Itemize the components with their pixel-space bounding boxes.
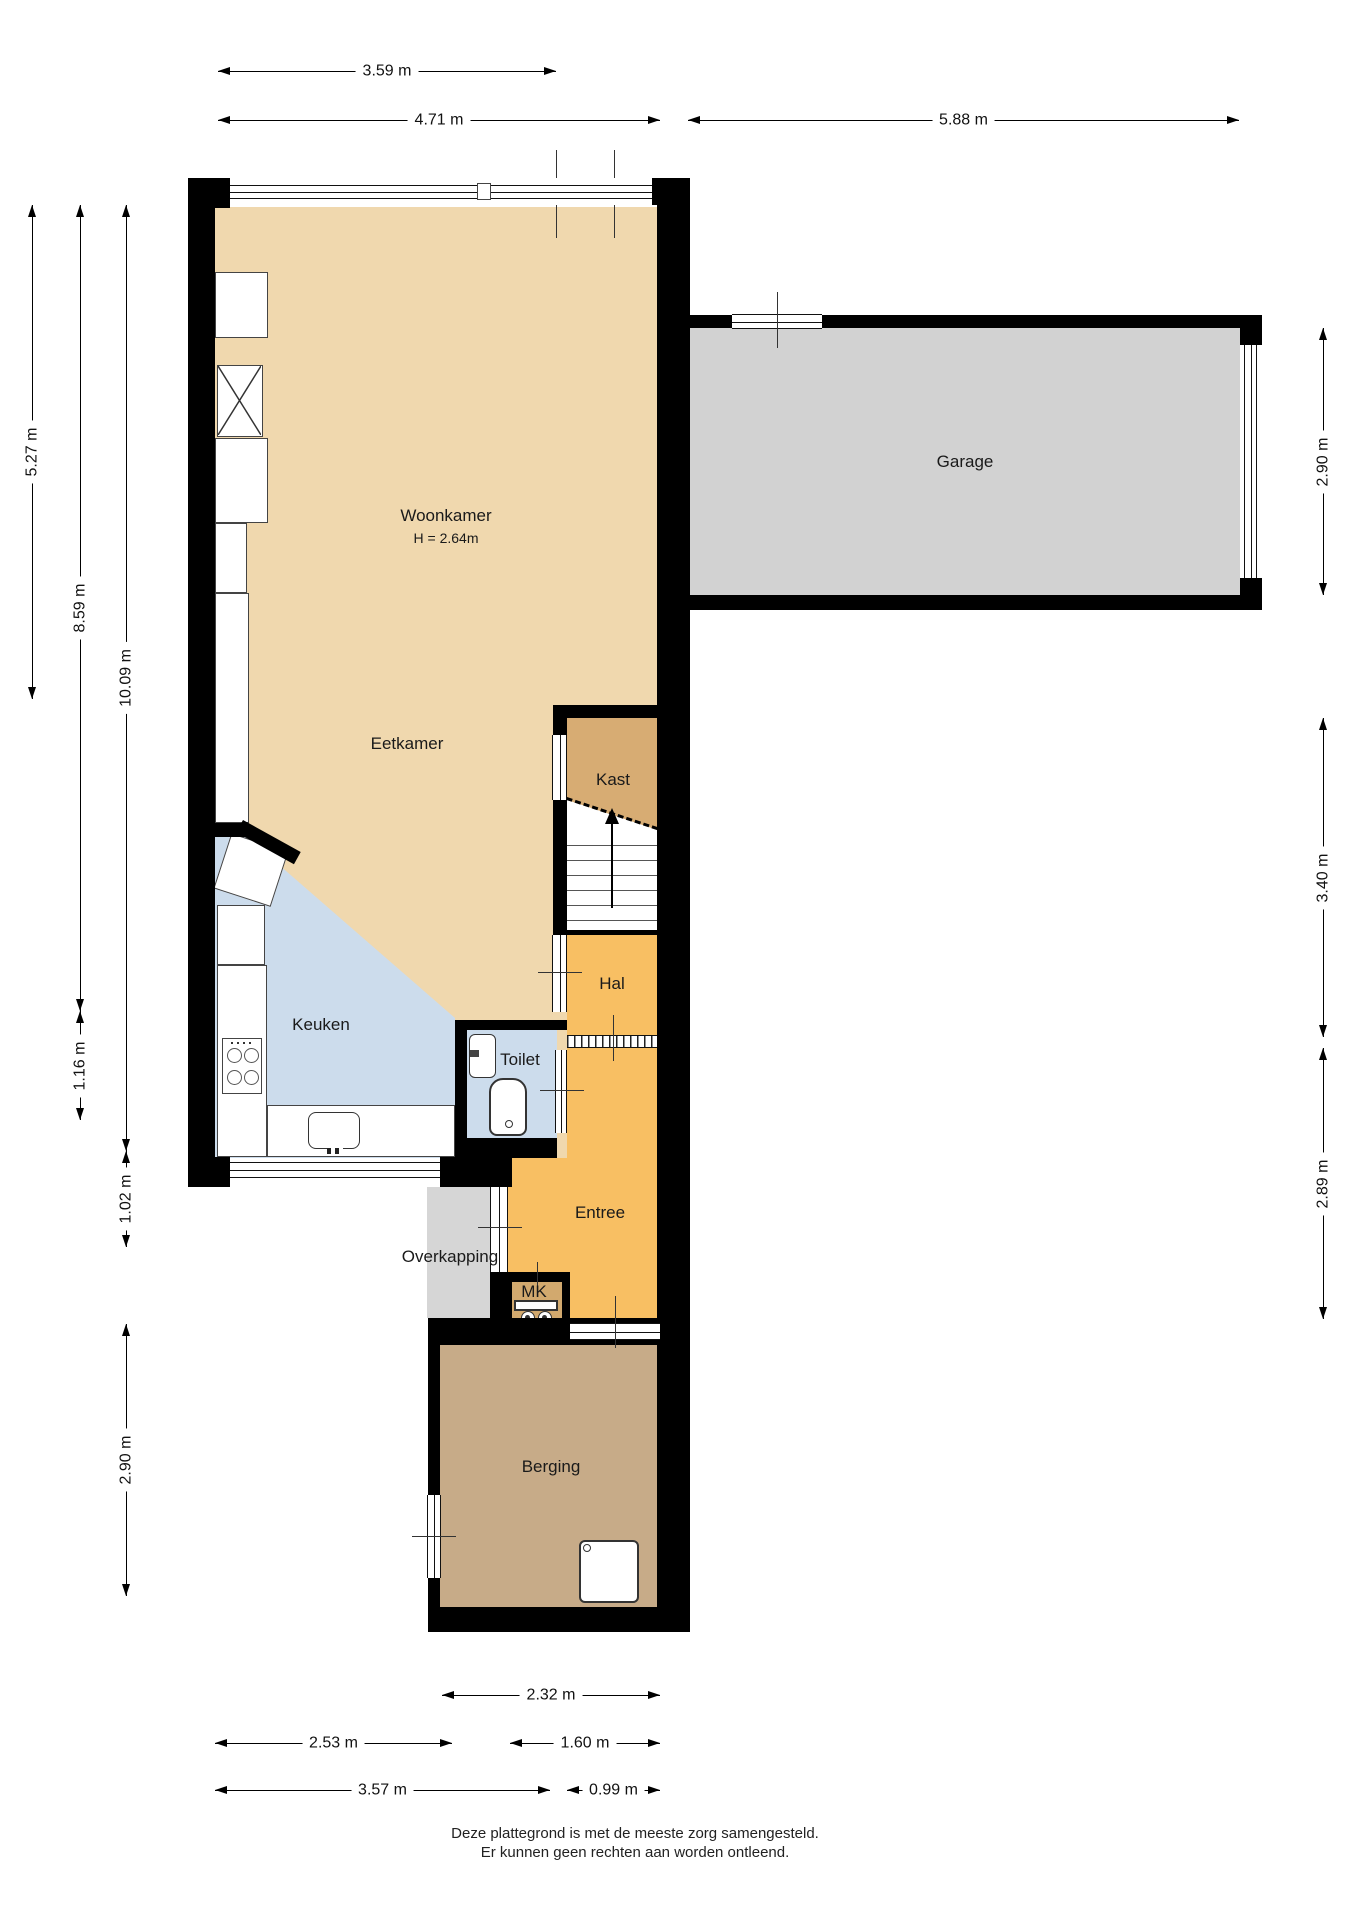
wall-closet-left-stub: [553, 705, 567, 735]
label-berging: Berging: [522, 1457, 581, 1477]
label-hal: Hal: [599, 974, 625, 994]
dimension-left-1009: 10.09 m: [126, 205, 127, 1151]
door-closet: [552, 735, 567, 800]
wall-garage-bottom: [690, 595, 1262, 610]
label-keuken: Keuken: [292, 1015, 350, 1035]
tick-door-front: [478, 1227, 522, 1228]
dimension-left-859: 8.59 m: [80, 205, 81, 1011]
dimension-left-116: 1.16 m: [80, 1011, 81, 1120]
stairs-up-arrowhead-icon: [605, 808, 619, 824]
cabinet-top-2: [215, 438, 268, 523]
label-kast: Kast: [596, 770, 630, 790]
toilet-tap-icon: [470, 1050, 479, 1057]
dimension-top-588: 5.88 m: [688, 120, 1239, 121]
wall-frontdoor-lower: [490, 1272, 512, 1322]
wall-right: [657, 178, 690, 1632]
dimension-right-289: 2.89 m: [1323, 1048, 1324, 1319]
wall-kitchen-right: [455, 1020, 467, 1158]
garage-door: [1244, 345, 1257, 578]
wall-bottom-mid-block: [440, 1157, 512, 1187]
label-overkapping: Overkapping: [402, 1247, 498, 1267]
dimension-bottom-099: 0.99 m: [567, 1790, 660, 1791]
wall-top-left-block: [188, 178, 230, 208]
wall-toilet-top: [455, 1020, 567, 1030]
dimension-top-359: 3.59 m: [218, 71, 556, 72]
tick-garage-window: [777, 292, 778, 348]
disclaimer-line-2: Er kunnen geen rechten aan worden ontlee…: [451, 1843, 819, 1862]
cabinet-mid: [217, 905, 265, 965]
dimension-bottom-232: 2.32 m: [442, 1695, 660, 1696]
wall-toilet-bottom: [467, 1138, 557, 1158]
wall-mk-right: [562, 1272, 570, 1322]
wall-garage-right-bottom-block: [1240, 578, 1262, 608]
stairs-up-arrow: [611, 824, 613, 908]
kitchen-sink-icon: [308, 1112, 360, 1149]
dimension-left-102: 1.02 m: [126, 1151, 127, 1247]
cabinet-top-1: [215, 272, 268, 338]
dimension-bottom-160: 1.60 m: [510, 1743, 660, 1744]
label-toilet: Toilet: [500, 1050, 540, 1070]
cabinet-top-3: [215, 523, 247, 593]
dimension-bottom-253: 2.53 m: [215, 1743, 452, 1744]
window-top-mullion: [477, 183, 491, 200]
counter-bottom: [267, 1105, 455, 1157]
door-toilet: [555, 1050, 567, 1133]
label-garage: Garage: [937, 452, 994, 472]
tick-window-top-a1: [556, 150, 557, 178]
wall-garage-right-top-block: [1240, 315, 1262, 345]
dimension-bottom-357: 3.57 m: [215, 1790, 550, 1791]
label-eetkamer: Eetkamer: [371, 734, 444, 754]
label-entree: Entree: [575, 1203, 625, 1223]
floorplan-canvas: Woonkamer H = 2.64m Eetkamer Garage Kast…: [0, 0, 1358, 1920]
tick-door-hall-living: [538, 972, 582, 973]
dimension-right-340: 3.40 m: [1323, 718, 1324, 1037]
disclaimer-text: Deze plattegrond is met de meeste zorg s…: [451, 1824, 819, 1862]
disclaimer-line-1: Deze plattegrond is met de meeste zorg s…: [451, 1824, 819, 1843]
window-kitchen-bottom: [230, 1162, 440, 1178]
wall-closet-left-lower: [553, 798, 567, 935]
tick-storage-top-window: [615, 1296, 616, 1348]
tick-window-top-b1: [614, 150, 615, 178]
label-mk: MK: [521, 1282, 547, 1302]
floor-entry-side: [508, 1158, 567, 1272]
wall-storage-bottom: [428, 1607, 690, 1632]
wall-closet-top: [553, 705, 657, 718]
tick-door-toilet: [540, 1090, 584, 1091]
window-top-facade: [230, 185, 652, 199]
toilet-flush-icon: [505, 1120, 513, 1128]
door-hall-living: [552, 935, 567, 1012]
door-hall-entry-divider: [567, 1035, 657, 1048]
label-ceiling-height: H = 2.64m: [414, 530, 479, 546]
freezer-hinge-icon: [583, 1544, 591, 1552]
tick-storage-left-window: [412, 1536, 456, 1537]
floor-entry-main: [567, 1048, 657, 1318]
wall-left: [188, 178, 215, 1187]
cabinet-tall: [215, 593, 249, 823]
stove-icon: [222, 1038, 262, 1094]
dimension-left-290: 2.90 m: [126, 1324, 127, 1596]
dimension-right-290: 2.90 m: [1323, 328, 1324, 595]
tick-hall-entry-divider: [613, 1015, 614, 1061]
label-woonkamer: Woonkamer: [400, 506, 491, 526]
dimension-left-527: 5.27 m: [32, 205, 33, 699]
wall-stairs-bottom: [567, 930, 657, 935]
tick-window-top-b2: [614, 205, 615, 238]
fireplace-icon: [217, 365, 263, 437]
wall-bottom-left-block: [188, 1157, 230, 1187]
dimension-top-471: 4.71 m: [218, 120, 660, 121]
tick-window-top-a2: [556, 205, 557, 238]
kitchen-tap-icon: [327, 1148, 343, 1154]
